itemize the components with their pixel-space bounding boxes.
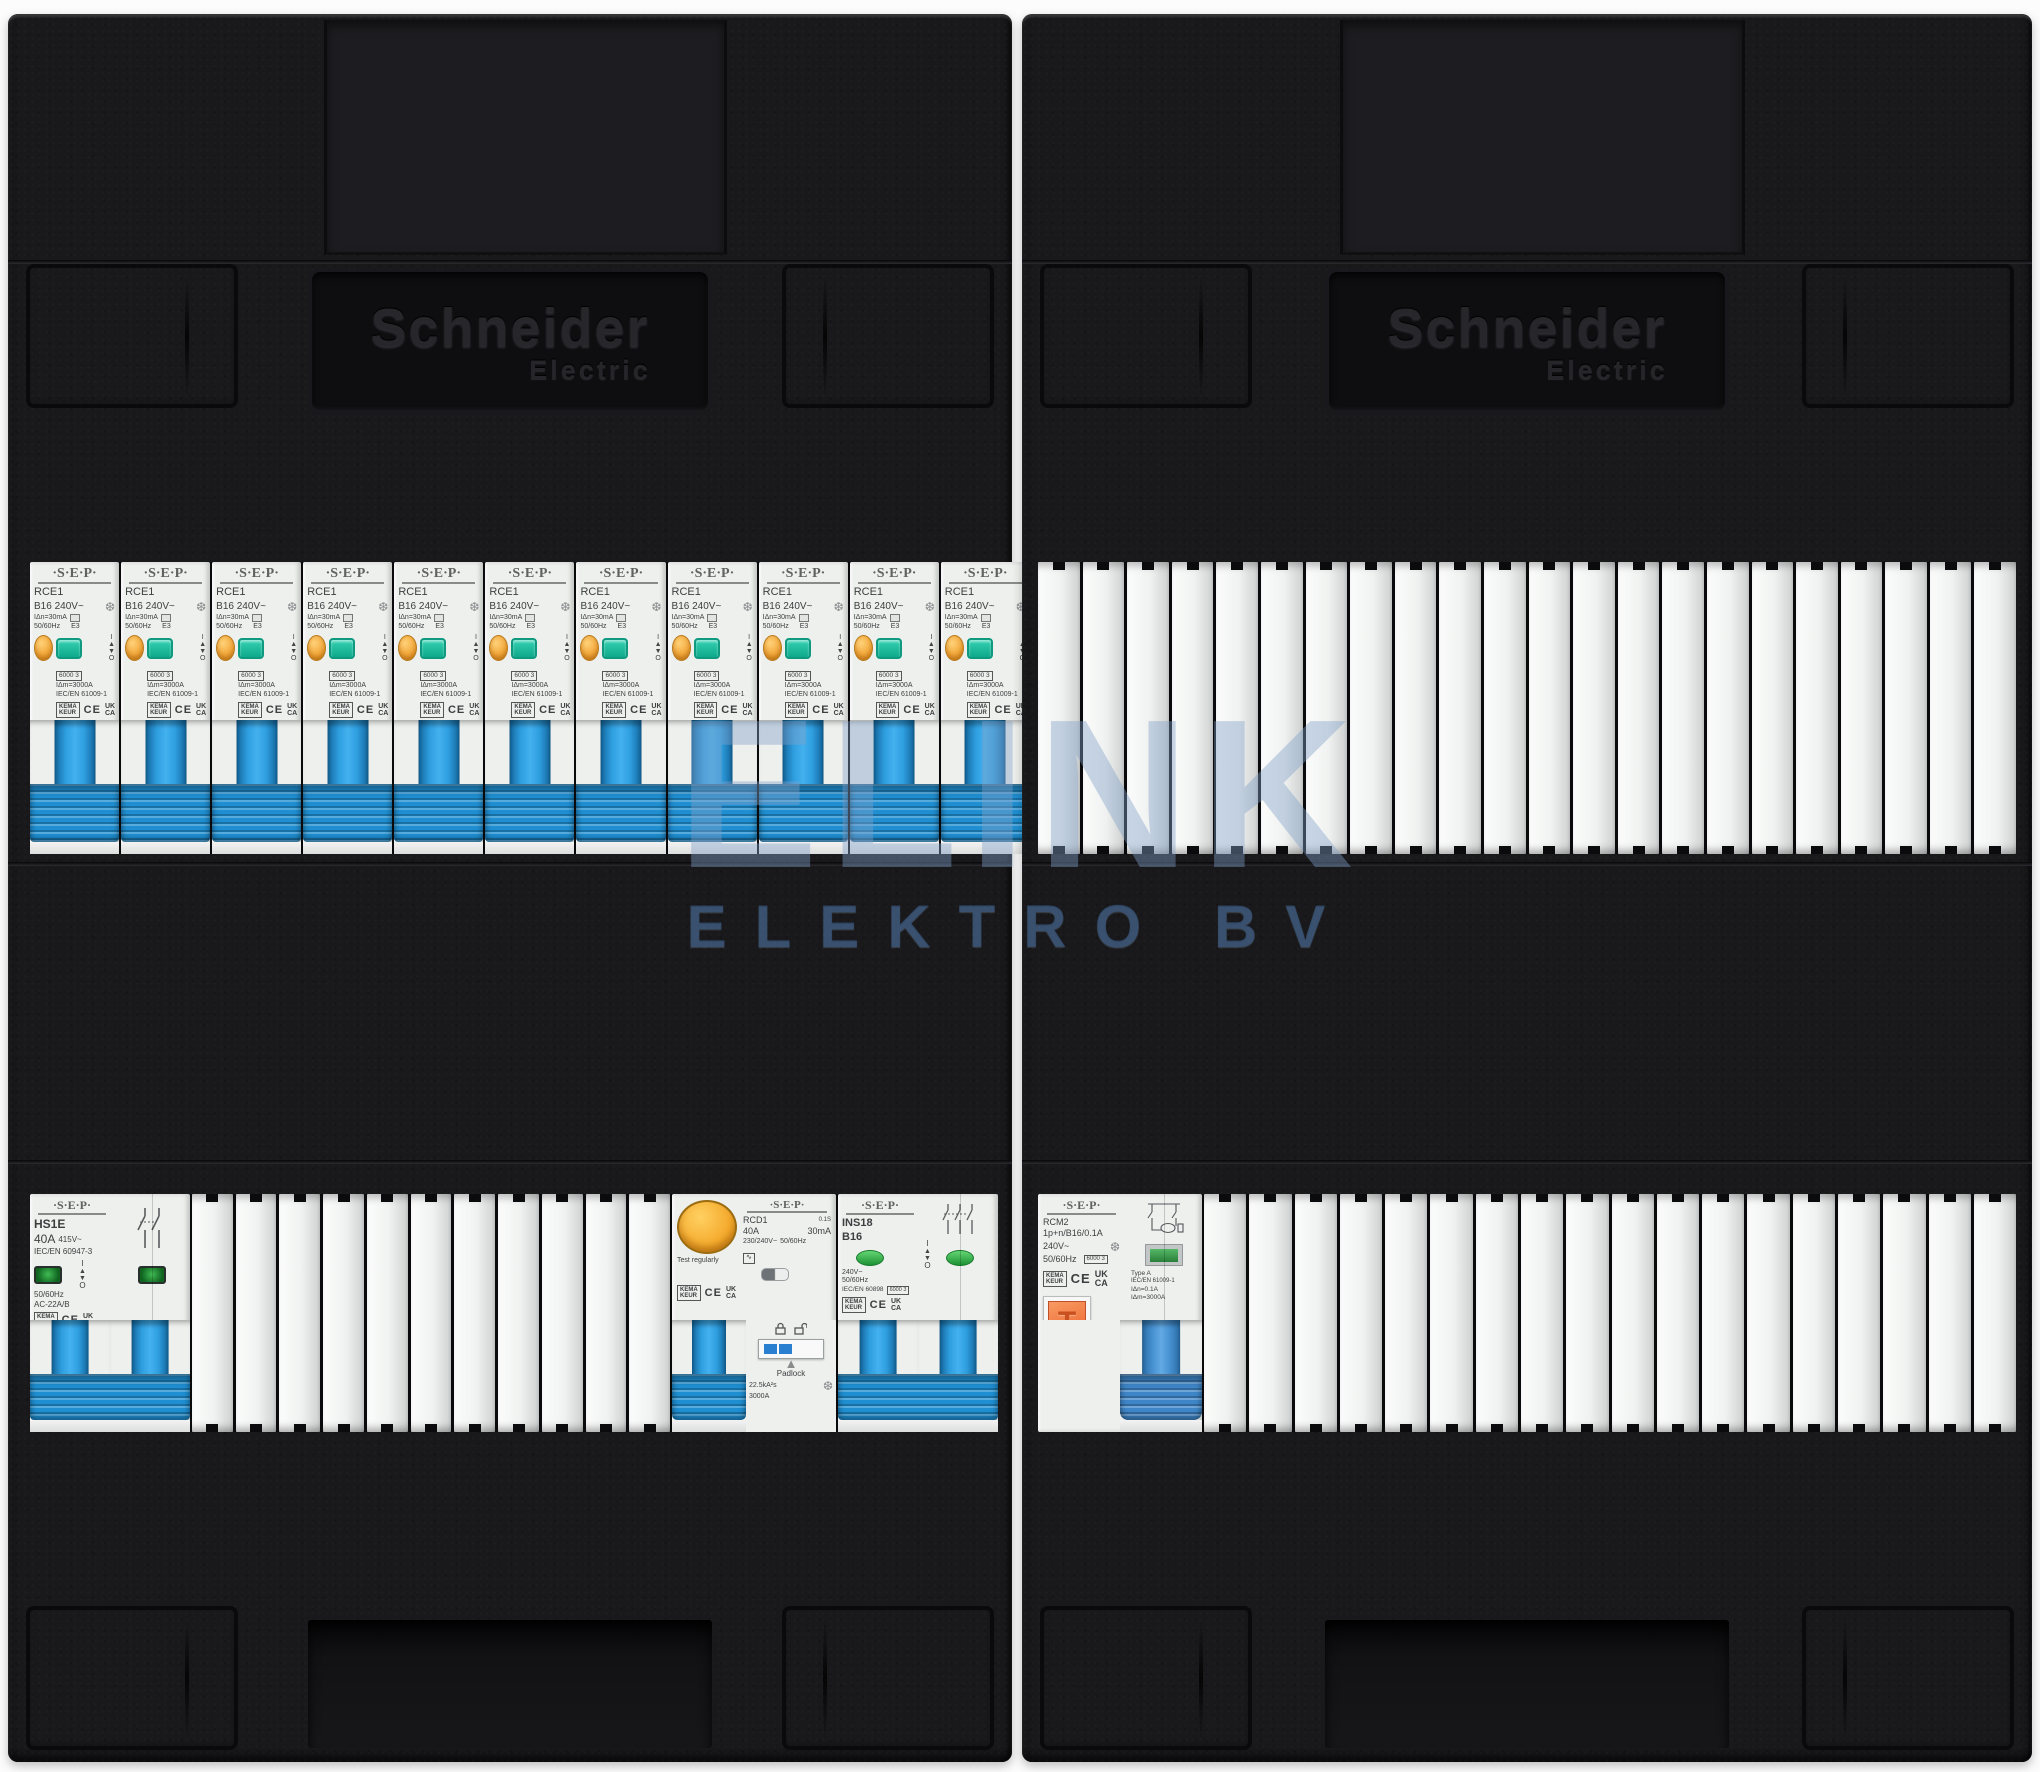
breaking-capacity: 6000 3 bbox=[1084, 1255, 1108, 1264]
padlock-open-icon bbox=[794, 1322, 807, 1335]
din-row-2-left: ·S·E·P· HS1E 40A 415V~ IEC/EN 60947-3 I … bbox=[30, 1194, 992, 1432]
off-label: O bbox=[200, 655, 205, 662]
breaker-toggle-handle[interactable] bbox=[576, 784, 665, 842]
delay-label: 0.1S bbox=[819, 1217, 831, 1225]
brand-name: Schneider bbox=[1387, 297, 1666, 359]
icn-label: 3000A bbox=[749, 1393, 833, 1402]
test-button[interactable] bbox=[854, 635, 873, 661]
rating-label: B16 240V~ bbox=[580, 601, 630, 614]
frost-icon: ❆ bbox=[834, 600, 844, 614]
on-label: I bbox=[839, 634, 841, 641]
on-label: I bbox=[293, 634, 295, 641]
module-base bbox=[838, 1420, 998, 1432]
switch-toggle-handle[interactable] bbox=[30, 1374, 190, 1420]
rcbo-rce1: ·S·E·P· RCE1 B16 240V~ ❆ IΔn=30mA 50/60H… bbox=[576, 562, 665, 854]
toggle-stem[interactable] bbox=[668, 720, 757, 784]
latch-row-bottom bbox=[1022, 1608, 2032, 1750]
sep-logo: ·S·E·P· bbox=[584, 566, 657, 584]
frost-icon: ❆ bbox=[823, 1379, 833, 1393]
up-arrow-icon: ▲ bbox=[837, 641, 844, 648]
ce-mark: CE bbox=[630, 704, 647, 716]
breaker-toggle-handle[interactable] bbox=[668, 784, 757, 842]
on-label: I bbox=[202, 634, 204, 641]
blank-cover-strip bbox=[1385, 1194, 1427, 1432]
blank-cover-strip bbox=[411, 1194, 452, 1432]
sep-logo: ·S·E·P· bbox=[747, 1199, 827, 1213]
sep-logo: ·S·E·P· bbox=[493, 566, 566, 584]
toggle-stem[interactable] bbox=[212, 720, 301, 784]
on-label: I bbox=[475, 634, 477, 641]
ukca-mark: UKCA bbox=[83, 1313, 93, 1320]
test-button[interactable] bbox=[763, 635, 782, 661]
blank-cover-strip bbox=[1083, 562, 1125, 854]
toggle-stem[interactable] bbox=[110, 1320, 190, 1374]
on-label: I bbox=[930, 634, 932, 641]
blank-cover-strip bbox=[236, 1194, 277, 1432]
standard-label: IEC/EN 61009-1 bbox=[511, 691, 570, 700]
kema-keur-mark: KEMAKEUR bbox=[842, 1297, 866, 1313]
model-label: RCD1 bbox=[743, 1215, 768, 1226]
frost-icon: ❆ bbox=[560, 600, 570, 614]
toggle-stem[interactable] bbox=[1120, 1320, 1202, 1374]
blank-cover-strip bbox=[586, 1194, 627, 1432]
brand-name: Schneider bbox=[370, 297, 649, 359]
breaking-capacity: 6000 3 bbox=[511, 671, 537, 681]
test-button[interactable] bbox=[489, 635, 508, 661]
up-arrow-icon: ▲ bbox=[928, 641, 935, 648]
standard-label: IEC/EN 61009-1 bbox=[967, 691, 1026, 700]
rating-label: B16 240V~ bbox=[763, 601, 813, 614]
status-indicator bbox=[329, 638, 355, 659]
status-indicator bbox=[34, 1266, 62, 1284]
breaking-capacity: 6000 3 bbox=[56, 671, 82, 681]
kema-keur-mark: KEMAKEUR bbox=[785, 702, 809, 718]
off-label: O bbox=[655, 655, 660, 662]
test-button[interactable] bbox=[34, 635, 53, 661]
ce-mark: CE bbox=[266, 704, 283, 716]
blank-cover-strip bbox=[1618, 562, 1660, 854]
breaker-toggle-handle[interactable] bbox=[485, 784, 574, 842]
standard-label: IEC/EN 61009-1 bbox=[420, 691, 479, 700]
cover-latch[interactable] bbox=[30, 268, 234, 404]
rcbo-rce1: ·S·E·P· RCE1 B16 240V~ ❆ IΔn=30mA 50/60H… bbox=[121, 562, 210, 854]
module-base bbox=[303, 842, 392, 854]
din-row-1-right bbox=[1038, 562, 2016, 854]
freq-label: 50/60Hz bbox=[854, 623, 880, 632]
sep-logo: ·S·E·P· bbox=[1047, 1198, 1116, 1215]
toggle-stem[interactable] bbox=[30, 1320, 110, 1374]
module-base bbox=[759, 842, 848, 854]
sep-logo: ·S·E·P· bbox=[767, 566, 840, 584]
ce-mark: CE bbox=[903, 704, 920, 716]
model-label: RCE1 bbox=[854, 586, 935, 600]
module-base bbox=[941, 842, 1030, 854]
e3-label: E3 bbox=[253, 623, 262, 632]
blank-cover-strip bbox=[192, 1194, 233, 1432]
breaker-toggle-handle[interactable] bbox=[941, 784, 1030, 842]
breaker-toggle-handle[interactable] bbox=[303, 784, 392, 842]
module-base bbox=[212, 842, 301, 854]
off-label: O bbox=[291, 655, 296, 662]
freq-label: 50/60Hz bbox=[672, 623, 698, 632]
ukca-mark: UKCA bbox=[925, 703, 935, 717]
blank-cover-strip bbox=[367, 1194, 408, 1432]
rating-label: B16 240V~ bbox=[672, 601, 722, 614]
rating-label: B16 240V~ bbox=[945, 601, 995, 614]
blank-cover-strip bbox=[1216, 562, 1258, 854]
status-indicator bbox=[238, 638, 264, 659]
off-label: O bbox=[929, 655, 934, 662]
top-cover-recess bbox=[324, 20, 727, 255]
module-base bbox=[394, 842, 483, 854]
ce-mark: CE bbox=[84, 704, 101, 716]
blank-cover-strip bbox=[1793, 1194, 1835, 1432]
blank-cover-strip bbox=[1752, 562, 1794, 854]
toggle-stem[interactable] bbox=[394, 720, 483, 784]
status-indicator bbox=[420, 638, 446, 659]
status-indicator bbox=[602, 638, 628, 659]
panel-seam bbox=[1022, 260, 2032, 264]
down-arrow-icon: ▼ bbox=[199, 648, 206, 655]
sensitivity-label: IΔn=30mA bbox=[489, 614, 522, 623]
breaker-toggle-handle[interactable] bbox=[212, 784, 301, 842]
sensitivity-label: IΔn=30mA bbox=[216, 614, 249, 623]
toggle-stem[interactable] bbox=[576, 720, 665, 784]
blank-cover-strip bbox=[1172, 562, 1214, 854]
standard-label: IEC/EN 61009-1 bbox=[238, 691, 297, 700]
panel-seam bbox=[1022, 862, 2032, 866]
blank-cover-strip bbox=[1476, 1194, 1518, 1432]
sensitivity-label: IΔn=30mA bbox=[398, 614, 431, 623]
ce-mark: CE bbox=[870, 1299, 887, 1311]
ce-mark: CE bbox=[705, 1287, 722, 1299]
on-label: I bbox=[384, 634, 386, 641]
main-switch-hs1e: ·S·E·P· HS1E 40A 415V~ IEC/EN 60947-3 I … bbox=[30, 1194, 190, 1432]
brand-sub: Electric bbox=[1546, 355, 1668, 386]
test-button[interactable] bbox=[125, 635, 144, 661]
blank-cover-strip bbox=[1657, 1194, 1699, 1432]
freq-label: 50/60Hz bbox=[398, 623, 424, 632]
sep-logo: ·S·E·P· bbox=[311, 566, 384, 584]
up-arrow-icon: ▲ bbox=[199, 641, 206, 648]
up-arrow-icon: ▲ bbox=[290, 641, 297, 648]
rating-label: B16 240V~ bbox=[854, 601, 904, 614]
module-base bbox=[121, 842, 210, 854]
test-button[interactable] bbox=[945, 635, 964, 661]
sensitivity-label: IΔn=30mA bbox=[307, 614, 340, 623]
idm-label: IΔm=3000A bbox=[511, 682, 570, 691]
brand-plate: Schneider Electric bbox=[308, 268, 712, 414]
down-arrow-icon: ▼ bbox=[564, 648, 571, 655]
type-label: Type A bbox=[1131, 1270, 1200, 1278]
insulation-icon bbox=[70, 614, 80, 622]
kema-keur-mark: KEMAKEUR bbox=[677, 1285, 701, 1301]
kema-keur-mark: KEMAKEUR bbox=[238, 702, 262, 718]
toggle-stem[interactable] bbox=[850, 720, 939, 784]
up-arrow-icon: ▲ bbox=[381, 641, 388, 648]
rcbo-rce1: ·S·E·P· RCE1 B16 240V~ ❆ IΔn=30mA 50/60H… bbox=[303, 562, 392, 854]
ukca-mark: UKCA bbox=[891, 1298, 901, 1312]
blank-cover-strip bbox=[1038, 562, 1080, 854]
ukca-mark: UKCA bbox=[105, 703, 115, 717]
blank-cover-strip bbox=[1841, 562, 1883, 854]
blank-covers-right-top bbox=[1038, 562, 2016, 854]
blank-cover-strip bbox=[1249, 1194, 1291, 1432]
top-cover-recess bbox=[1340, 20, 1745, 255]
breaker-toggle-handle[interactable] bbox=[121, 784, 210, 842]
frost-icon: ❆ bbox=[1110, 1240, 1120, 1254]
breaking-capacity: 6000 3 bbox=[887, 1286, 910, 1295]
freq-label: 50/60Hz bbox=[780, 1238, 806, 1247]
cover-latch[interactable] bbox=[1806, 268, 2010, 404]
down-arrow-icon: ▼ bbox=[928, 648, 935, 655]
blank-cover-strip bbox=[1612, 1194, 1654, 1432]
blank-cover-strip bbox=[498, 1194, 539, 1432]
kema-keur-mark: KEMAKEUR bbox=[329, 702, 353, 718]
ukca-mark: UKCA bbox=[287, 703, 297, 717]
ce-mark: CE bbox=[175, 704, 192, 716]
test-button[interactable] bbox=[580, 635, 599, 661]
cover-latch[interactable] bbox=[786, 268, 990, 404]
blank-cover-strip bbox=[1930, 562, 1972, 854]
e3-label: E3 bbox=[982, 623, 991, 632]
distribution-panel-left: Schneider Electric ·S·E·P· RCE1 B16 240V… bbox=[8, 14, 1012, 1762]
blank-cover-strip bbox=[1340, 1194, 1382, 1432]
kema-keur-mark: KEMAKEUR bbox=[511, 702, 535, 718]
cover-latch[interactable] bbox=[1044, 268, 1248, 404]
frost-icon: ❆ bbox=[469, 600, 479, 614]
standard-label: IEC/EN 61009-1 bbox=[329, 691, 388, 700]
blank-cover-strip bbox=[1204, 1194, 1246, 1432]
model-label: RCE1 bbox=[398, 586, 479, 600]
idm-label: IΔm=3000A bbox=[967, 682, 1026, 691]
off-label: O bbox=[564, 655, 569, 662]
panel-seam bbox=[8, 862, 1012, 866]
rating-label: B16 240V~ bbox=[34, 601, 84, 614]
toggle-stem[interactable] bbox=[30, 720, 119, 784]
breaking-capacity: 6000 3 bbox=[785, 671, 811, 681]
panel-seam bbox=[1022, 1160, 2032, 1164]
frost-icon: ❆ bbox=[743, 600, 753, 614]
rating-label: B16 bbox=[842, 1231, 918, 1245]
insulation-icon bbox=[252, 614, 262, 622]
test-button[interactable] bbox=[307, 635, 326, 661]
ce-mark: CE bbox=[721, 704, 738, 716]
toggle-stem[interactable] bbox=[303, 720, 392, 784]
insulation-icon bbox=[890, 614, 900, 622]
blank-cover-strip bbox=[1395, 562, 1437, 854]
frost-icon: ❆ bbox=[925, 600, 935, 614]
kema-keur-mark: KEMAKEUR bbox=[602, 702, 626, 718]
latch-row-top: Schneider Electric bbox=[1022, 266, 2032, 408]
rating-label: B16 240V~ bbox=[307, 601, 357, 614]
sensitivity-label: IΔn=30mA bbox=[763, 614, 796, 623]
idm-label: IΔm=3000A bbox=[329, 682, 388, 691]
rcbo-rce1: ·S·E·P· RCE1 B16 240V~ ❆ IΔn=30mA 50/60H… bbox=[394, 562, 483, 854]
test-button[interactable] bbox=[216, 635, 235, 661]
standard-label: IEC/EN 61009-1 bbox=[147, 691, 206, 700]
model-label: RCE1 bbox=[763, 586, 844, 600]
rcd-test-button[interactable] bbox=[677, 1200, 737, 1254]
e3-label: E3 bbox=[435, 623, 444, 632]
breaking-capacity: 6000 3 bbox=[602, 671, 628, 681]
model-label: RCE1 bbox=[489, 586, 570, 600]
ce-mark: CE bbox=[994, 704, 1011, 716]
sensitivity-label: IΔn=30mA bbox=[854, 614, 887, 623]
breaker-toggle-handle[interactable] bbox=[394, 784, 483, 842]
insulation-icon bbox=[616, 614, 626, 622]
breaker-toggle-handle[interactable] bbox=[759, 784, 848, 842]
breaker-toggle-handle[interactable] bbox=[850, 784, 939, 842]
rcm-test-button[interactable]: T bbox=[1048, 1301, 1086, 1320]
sep-logo: ·S·E·P· bbox=[129, 566, 202, 584]
kema-keur-mark: KEMAKEUR bbox=[967, 702, 991, 718]
e3-label: E3 bbox=[800, 623, 809, 632]
blank-cover-strip bbox=[1707, 562, 1749, 854]
e3-label: E3 bbox=[618, 623, 627, 632]
breaking-capacity: 6000 3 bbox=[329, 671, 355, 681]
ukca-mark: UKCA bbox=[1095, 1270, 1108, 1288]
freq-label: 50/60Hz bbox=[307, 623, 333, 632]
insulation-icon bbox=[525, 614, 535, 622]
voltage-label: 415V~ bbox=[58, 1235, 81, 1245]
on-label: I bbox=[111, 634, 113, 641]
bottom-recess bbox=[1325, 1620, 1729, 1748]
status-indicator bbox=[694, 638, 720, 659]
blank-cover-strip bbox=[1929, 1194, 1971, 1432]
test-button[interactable] bbox=[672, 635, 691, 661]
freq-label: 50/60Hz bbox=[216, 623, 242, 632]
e3-label: E3 bbox=[891, 623, 900, 632]
freq-label: 50/60Hz bbox=[489, 623, 515, 632]
rating-label: B16 240V~ bbox=[125, 601, 175, 614]
model-label: RCM2 bbox=[1043, 1217, 1120, 1228]
insulation-icon bbox=[707, 614, 717, 622]
kema-keur-mark: KEMAKEUR bbox=[420, 702, 444, 718]
module-base bbox=[668, 842, 757, 854]
toggle-stem[interactable] bbox=[485, 720, 574, 784]
idm-label: IΔm=3000A bbox=[694, 682, 753, 691]
blank-cover-strip bbox=[1439, 562, 1481, 854]
toggle-stem[interactable] bbox=[672, 1320, 746, 1374]
on-label: I bbox=[566, 634, 568, 641]
freq-label: 50/60Hz bbox=[945, 623, 971, 632]
freq-label: 50/60Hz bbox=[34, 623, 60, 632]
blank-cover-strip bbox=[323, 1194, 364, 1432]
latch-row-top: Schneider Electric bbox=[8, 266, 1012, 408]
sensitivity-label: 30mA bbox=[807, 1226, 831, 1237]
rcd-toggle-handle[interactable] bbox=[672, 1374, 746, 1420]
spec-label: 1p+n/B16/0.1A bbox=[1043, 1228, 1120, 1239]
up-arrow-icon: ▲ bbox=[564, 641, 571, 648]
breaker-toggle-handle[interactable] bbox=[30, 784, 119, 842]
brand-sub: Electric bbox=[529, 355, 651, 386]
freq-label: 50/60Hz bbox=[125, 623, 151, 632]
rcbo-rce1: ·S·E·P· RCE1 B16 240V~ ❆ IΔn=30mA 50/60H… bbox=[485, 562, 574, 854]
sensitivity-label: IΔn=30mA bbox=[580, 614, 613, 623]
module-base bbox=[576, 842, 665, 854]
breaker-toggle-handle[interactable] bbox=[838, 1374, 998, 1420]
insulation-icon bbox=[981, 614, 991, 622]
cover-latch[interactable] bbox=[786, 1610, 990, 1746]
rcbo-rce1: ·S·E·P· RCE1 B16 240V~ ❆ IΔn=30mA 50/60H… bbox=[30, 562, 119, 854]
bottom-recess bbox=[308, 1620, 712, 1748]
toggle-stem[interactable] bbox=[918, 1320, 998, 1374]
wave-icon: ∿ bbox=[743, 1253, 755, 1263]
rcbo-rce1: ·S·E·P· RCE1 B16 240V~ ❆ IΔn=30mA 50/60H… bbox=[759, 562, 848, 854]
frost-icon: ❆ bbox=[196, 600, 206, 614]
status-indicator bbox=[785, 638, 811, 659]
model-label: HS1E bbox=[34, 1217, 110, 1232]
down-arrow-icon: ▼ bbox=[108, 648, 115, 655]
blank-cover-strip bbox=[1747, 1194, 1789, 1432]
rcbo-rce1: ·S·E·P· RCE1 B16 240V~ ❆ IΔn=30mA 50/60H… bbox=[668, 562, 757, 854]
panel-seam bbox=[8, 1160, 1012, 1164]
toggle-stem[interactable] bbox=[838, 1320, 918, 1374]
i2t-label: 22.5kA²s bbox=[749, 1382, 777, 1391]
status-indicator bbox=[56, 638, 82, 659]
ce-mark: CE bbox=[1071, 1271, 1091, 1286]
blank-cover-strip bbox=[1306, 562, 1348, 854]
standard-label: IEC/EN 61009-1 bbox=[876, 691, 935, 700]
test-button[interactable] bbox=[398, 635, 417, 661]
up-arrow-icon: ▲ bbox=[79, 1268, 86, 1275]
sensitivity-label: IΔn=30mA bbox=[672, 614, 705, 623]
breaker-ins18: ·S·E·P· INS18 B16 240V~ 50/60Hz IEC/EN 6… bbox=[838, 1194, 998, 1432]
product-photo-two-consumer-units: Schneider Electric ·S·E·P· RCE1 B16 240V… bbox=[0, 0, 2040, 1772]
blank-cover-strip bbox=[1702, 1194, 1744, 1432]
sensitivity-label: IΔn=30mA bbox=[945, 614, 978, 623]
toggle-stem[interactable] bbox=[121, 720, 210, 784]
status-indicator bbox=[147, 638, 173, 659]
sep-logo: ·S·E·P· bbox=[220, 566, 293, 584]
test-label: Test regularly bbox=[677, 1257, 737, 1266]
off-label: O bbox=[382, 655, 387, 662]
toggle-stem[interactable] bbox=[941, 720, 1030, 784]
e3-label: E3 bbox=[71, 623, 80, 632]
blank-cover-strip bbox=[1484, 562, 1526, 854]
breaker-toggle-handle[interactable] bbox=[1120, 1374, 1202, 1420]
ce-mark: CE bbox=[539, 704, 556, 716]
din-row-1-left: ·S·E·P· RCE1 B16 240V~ ❆ IΔn=30mA 50/60H… bbox=[30, 562, 992, 854]
ukca-mark: UKCA bbox=[651, 703, 661, 717]
blank-cover-strip bbox=[1566, 1194, 1608, 1432]
kema-keur-mark: KEMAKEUR bbox=[1043, 1271, 1067, 1287]
blank-cover-strip bbox=[1662, 562, 1704, 854]
insulation-icon bbox=[161, 614, 171, 622]
model-label: INS18 bbox=[842, 1217, 918, 1231]
rating-label: 40A bbox=[743, 1226, 759, 1237]
ce-mark: CE bbox=[812, 704, 829, 716]
model-label: RCE1 bbox=[34, 586, 115, 600]
down-arrow-icon: ▼ bbox=[746, 648, 753, 655]
trip-indicator bbox=[761, 1268, 789, 1281]
down-arrow-icon: ▼ bbox=[655, 648, 662, 655]
padlock-closed-icon bbox=[775, 1322, 786, 1335]
breaking-capacity: 6000 3 bbox=[147, 671, 173, 681]
cover-latch[interactable] bbox=[30, 1610, 234, 1746]
freq-label: 50/60Hz bbox=[580, 623, 606, 632]
cover-latch[interactable] bbox=[1806, 1610, 2010, 1746]
off-label: O bbox=[109, 655, 114, 662]
rcbo-rce1: ·S·E·P· RCE1 B16 240V~ ❆ IΔn=30mA 50/60H… bbox=[850, 562, 939, 854]
cover-latch[interactable] bbox=[1044, 1610, 1248, 1746]
blank-cover-strip bbox=[1529, 562, 1571, 854]
e3-label: E3 bbox=[526, 623, 535, 632]
kema-keur-mark: KEMAKEUR bbox=[147, 702, 171, 718]
kema-keur-mark: KEMAKEUR bbox=[694, 702, 718, 718]
toggle-stem[interactable] bbox=[759, 720, 848, 784]
